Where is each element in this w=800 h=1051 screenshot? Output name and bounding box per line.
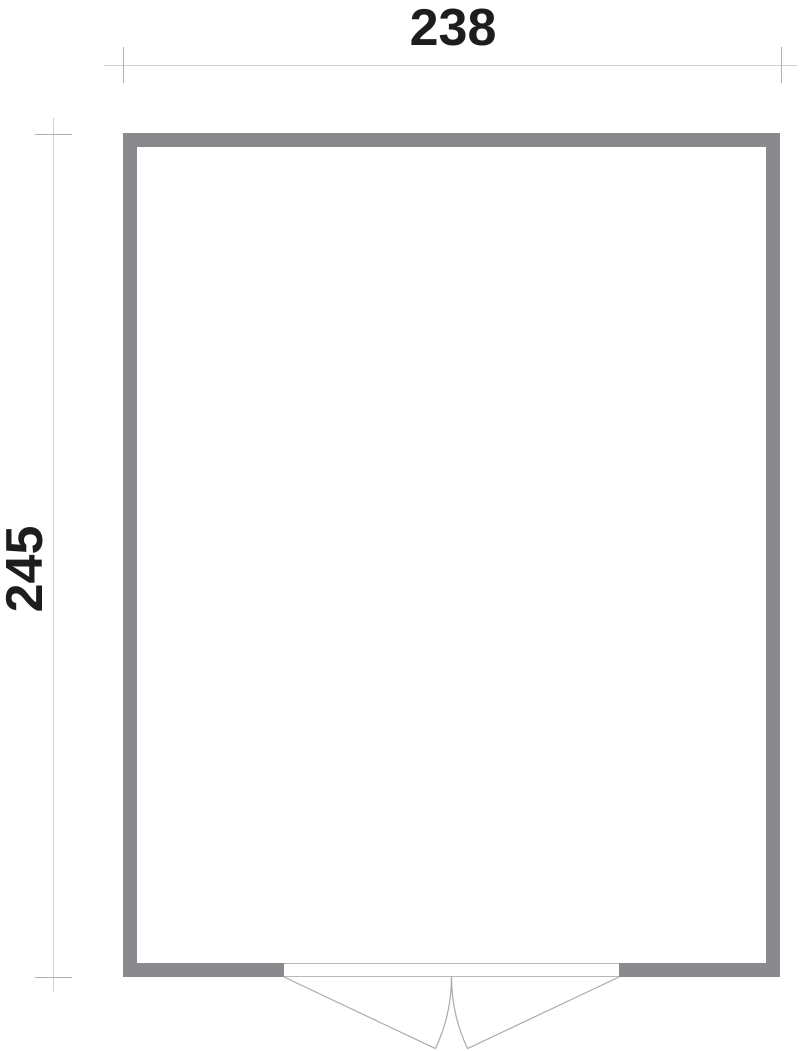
height-dimension-label: 245 (0, 526, 51, 613)
interior-floor (137, 147, 766, 963)
door-leaf-right (468, 977, 619, 1049)
door-leaf-left (284, 977, 435, 1049)
door-swing-arc-right (452, 977, 468, 1049)
floor-plan-canvas: 238 245 (0, 0, 800, 1051)
door-opening (284, 963, 619, 977)
door-swing-arc-left (435, 977, 451, 1049)
width-dimension-label: 238 (410, 2, 497, 54)
floor-plan-drawing (0, 0, 800, 1051)
